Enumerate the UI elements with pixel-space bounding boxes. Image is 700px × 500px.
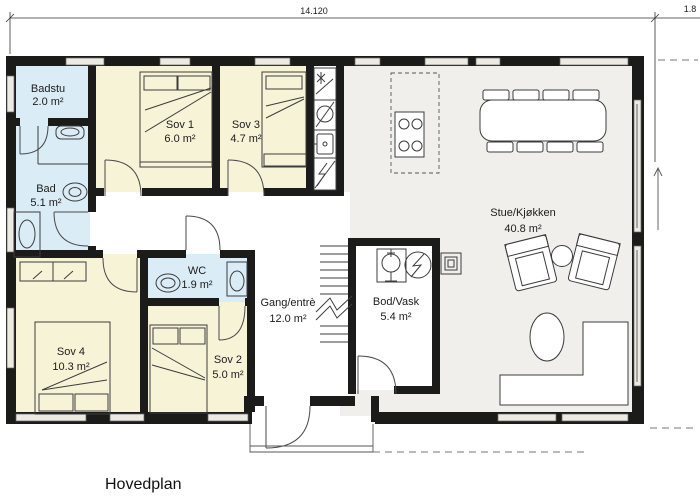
label-sov4-area: 10.3 m² [52, 361, 90, 373]
tech-column [313, 68, 336, 190]
label-gang-name: Gang/entrè [260, 297, 315, 309]
dimension-right-width: 1.8 [684, 4, 697, 14]
label-sov3-area: 4.7 m² [230, 133, 262, 145]
label-wc-area: 1.9 m² [181, 279, 213, 291]
label-sov2-name: Sov 2 [214, 354, 242, 366]
label-sov2-area: 5.0 m² [212, 369, 244, 381]
dining-chair [577, 142, 603, 152]
label-gang-area: 12.0 m² [269, 313, 307, 325]
dining-chair [517, 142, 543, 152]
label-sov3-name: Sov 3 [232, 119, 260, 131]
dining-chair [543, 90, 569, 100]
label-stue-name: Stue/Kjøkken [490, 207, 555, 219]
dining-set [480, 90, 606, 152]
label-bod-area: 5.4 m² [380, 311, 412, 323]
floor-plan-canvas: 14.120 1.8 Badstu 2.0 m² Bad 5.1 m² Sov … [0, 0, 700, 500]
label-bod-name: Bod/Vask [373, 296, 420, 308]
stove-icon [395, 112, 424, 157]
label-badstu-area: 2.0 m² [32, 96, 64, 108]
label-wc-name: WC [188, 265, 206, 277]
dining-chair [483, 90, 509, 100]
dining-chair [487, 142, 513, 152]
door-entrance [266, 406, 310, 448]
side-table [552, 246, 573, 267]
label-stue-area: 40.8 m² [504, 223, 542, 235]
room-wc-floor [144, 254, 251, 302]
room-sov4-floor [10, 254, 144, 416]
label-sov4-name: Sov 4 [57, 346, 85, 358]
label-bad-name: Bad [36, 183, 56, 195]
label-sov1-area: 6.0 m² [164, 133, 196, 145]
dining-chair [513, 90, 539, 100]
plan-title: Hovedplan [105, 476, 182, 493]
coffee-table [530, 313, 564, 361]
corridor-floor [94, 192, 254, 254]
dining-chair [547, 142, 573, 152]
label-sov1-name: Sov 1 [166, 119, 194, 131]
dining-chair [573, 90, 599, 100]
dimension-top-width: 14.120 [300, 6, 328, 16]
dining-table [480, 100, 606, 141]
label-bad-area: 5.1 m² [30, 197, 62, 209]
label-badstu-name: Badstu [31, 83, 65, 95]
sliding-door-arrow-icon [654, 168, 662, 230]
